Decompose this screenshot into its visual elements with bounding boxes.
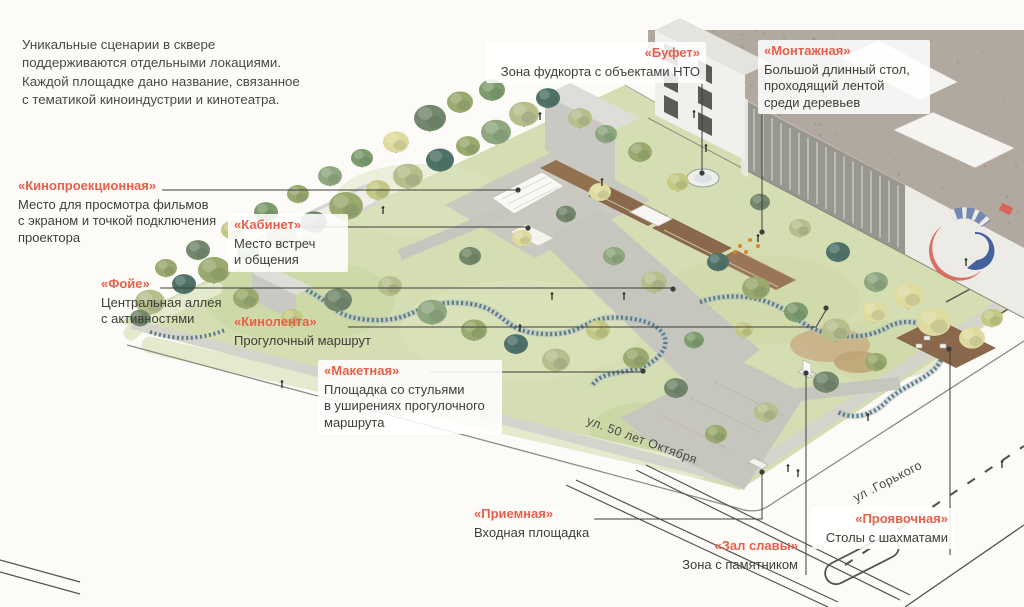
tree-shade (553, 358, 567, 369)
tree (447, 91, 473, 113)
tree (351, 149, 373, 167)
tree-shade (468, 254, 479, 263)
tree-shade (388, 284, 400, 294)
tree-shade (564, 213, 574, 221)
label-kinoproekcionnaya-desc: Место для просмотра фильмов с экраном и … (18, 197, 233, 247)
roof-speckle (834, 135, 836, 137)
roof-speckle (1017, 210, 1020, 213)
label-kabinet-title: «Кабинет» (234, 217, 342, 234)
person-head (539, 112, 542, 115)
roof-speckle (957, 62, 959, 64)
label-kinolenta: «Кинолента» Прогулочный маршрут (234, 314, 419, 349)
roof-speckle (957, 183, 958, 184)
roof-speckle (1005, 156, 1007, 158)
roof-speckle (821, 124, 822, 125)
roof-speckle (999, 193, 1001, 195)
label-bufet-title: «Буфет» (492, 45, 700, 62)
roof-speckle (981, 82, 982, 83)
person-head (693, 110, 696, 113)
label-maketnaya-title: «Макетная» (324, 363, 496, 380)
label-priemnaya-desc: Входная площадка (474, 525, 624, 542)
tree-shade (742, 329, 751, 336)
roof-speckle (750, 84, 753, 87)
roof-speckle (1016, 170, 1017, 171)
label-bufet-desc: Зона фудкорта с объектами НТО (492, 64, 700, 81)
roof-speckle (651, 39, 653, 41)
roof-speckle (741, 38, 743, 40)
label-proyavochnaya-desc: Столы с шахматами (818, 530, 948, 547)
tree-shade (521, 112, 536, 124)
roof-speckle (1007, 222, 1010, 225)
label-zal-slavy-desc: Зона с памятником (662, 557, 798, 574)
tree-shade (427, 116, 443, 129)
tree-shade (905, 294, 920, 306)
tree-shade (520, 237, 530, 245)
person-head (1001, 460, 1004, 463)
roof-speckle (763, 32, 765, 34)
tree (456, 136, 480, 156)
tree (155, 259, 177, 277)
tree-shade (493, 130, 508, 142)
tree-shade (833, 328, 847, 339)
tree-shade (196, 248, 208, 258)
roof-speckle (773, 33, 774, 34)
roof-speckle (928, 183, 930, 185)
tree-shade (871, 310, 884, 320)
tree-shade (514, 342, 526, 352)
street-name-gorkogo: ул .Горького (851, 458, 924, 505)
tree (287, 185, 309, 203)
label-montazhnaya: «Монтажная» Большой длинный стол, проход… (758, 40, 930, 114)
tree (509, 102, 539, 127)
roof-speckle (831, 37, 833, 39)
label-kinoproekcionnaya: «Кинопроекционная» Место для просмотра ф… (18, 178, 233, 246)
roof-speckle (712, 30, 715, 33)
masterplan-diagram: ул. 50 лет Октября ул .Горького Уникальн… (0, 0, 1024, 607)
roof-speckle (861, 149, 862, 150)
tree-shade (874, 280, 886, 290)
tree-shade (931, 319, 948, 333)
roof-speckle (941, 188, 943, 190)
roof-speckle (804, 119, 806, 121)
person (787, 464, 790, 472)
tree-shade (753, 286, 767, 297)
label-montazhnaya-title: «Монтажная» (764, 43, 924, 60)
label-proyavochnaya: «Проявочная» Столы с шахматами (812, 508, 954, 549)
person (1001, 460, 1004, 468)
tree-shade (393, 140, 406, 150)
label-maketnaya: «Макетная» Площадка со стульями в уширен… (318, 360, 502, 434)
tree-shade (794, 310, 806, 320)
person-head (965, 258, 968, 261)
label-foje-title: «Фойе» (101, 276, 261, 293)
person-head (867, 413, 870, 416)
tree-shade (633, 356, 646, 366)
tree-shade (596, 328, 608, 338)
roof-speckle (957, 61, 958, 62)
person-head (787, 464, 790, 467)
tree-shade (437, 158, 451, 169)
tree-shade (692, 339, 702, 347)
roof-speckle (755, 30, 757, 32)
label-kinolenta-title: «Кинолента» (234, 314, 419, 331)
tree-shade (638, 150, 650, 160)
tree-shade (466, 144, 478, 154)
person-head (757, 234, 760, 237)
roof-speckle (1006, 195, 1009, 198)
label-zal-slavy: «Зал славы» Зона с памятником (662, 538, 798, 573)
tree-shade (676, 180, 687, 189)
roof-speckle (984, 165, 987, 168)
label-bufet: «Буфет» Зона фудкорта с объектами НТО (486, 42, 706, 83)
person (797, 469, 800, 477)
roof-speckle (1014, 124, 1016, 126)
person-head (705, 144, 708, 147)
tree-shade (489, 88, 502, 98)
tree-shade (457, 100, 470, 110)
tree-shade (716, 260, 727, 269)
roof-speckle (1004, 136, 1005, 137)
tree-shade (164, 266, 175, 275)
roof-speckle (902, 138, 903, 139)
tree-shade (651, 280, 664, 290)
label-montazhnaya-desc: Большой длинный стол, проходящий лентой … (764, 62, 924, 112)
person-head (281, 380, 284, 383)
roof-speckle (833, 36, 835, 38)
tree-shade (874, 360, 885, 369)
roof-speckle (742, 46, 745, 49)
person-head (551, 292, 554, 295)
tree-shade (360, 156, 371, 165)
tree-shade (758, 201, 768, 209)
tree (383, 131, 409, 153)
roof-speckle (909, 149, 910, 150)
tram-rails-corner (0, 560, 80, 594)
label-priemnaya: «Приемная» Входная площадка (474, 506, 624, 541)
tree-shade (598, 190, 609, 199)
tree-shade (612, 254, 623, 263)
roof-speckle (978, 96, 980, 98)
roof-speckle (1003, 97, 1005, 99)
roof-speckle (982, 50, 984, 52)
label-zal-slavy-title: «Зал славы» (662, 538, 798, 555)
tree-shade (836, 250, 848, 260)
roof-speckle (814, 122, 817, 125)
roof-speckle (783, 36, 786, 39)
tree-shade (578, 116, 590, 126)
roof-speckle (819, 124, 821, 126)
label-priemnaya-title: «Приемная» (474, 506, 624, 523)
tree-shade (296, 192, 307, 201)
tree (318, 166, 342, 186)
person-head (797, 469, 800, 472)
roof-speckle (897, 173, 900, 176)
person (539, 112, 542, 120)
tree-shade (471, 328, 484, 338)
tree-shade (328, 174, 340, 184)
intro-text: Уникальные сценарии в сквере поддерживаю… (22, 36, 342, 109)
tree-shade (823, 380, 836, 390)
tree-shade (969, 336, 982, 346)
tree-shade (405, 174, 420, 186)
tree-shade (798, 226, 809, 235)
roof-speckle (927, 159, 929, 161)
roof-speckle (819, 134, 822, 137)
tree-shade (604, 132, 615, 141)
person-head (382, 206, 385, 209)
tree-shade (990, 316, 1001, 325)
roof-speckle (741, 33, 743, 35)
label-kabinet-desc: Место встреч и общения (234, 236, 342, 269)
roof-speckle (894, 158, 896, 160)
tree-shade (335, 298, 349, 309)
roof-speckle (977, 120, 979, 122)
roof-speckle (969, 113, 970, 114)
tree-shade (674, 386, 686, 396)
tree-shade (546, 96, 558, 106)
tree (414, 105, 446, 132)
label-proyavochnaya-title: «Проявочная» (818, 511, 948, 528)
roof-speckle (778, 114, 781, 117)
person-head (623, 292, 626, 295)
tree-shade (429, 310, 444, 322)
label-kinolenta-desc: Прогулочный маршрут (234, 333, 419, 350)
label-kabinet: «Кабинет» Место встреч и общения (228, 214, 348, 272)
roof-speckle (1015, 164, 1018, 167)
person-head (601, 178, 604, 181)
label-kinoproekcionnaya-title: «Кинопроекционная» (18, 178, 233, 195)
label-maketnaya-desc: Площадка со стульями в уширениях прогуло… (324, 382, 496, 432)
tree-shade (714, 432, 725, 441)
tree-shade (764, 410, 776, 420)
